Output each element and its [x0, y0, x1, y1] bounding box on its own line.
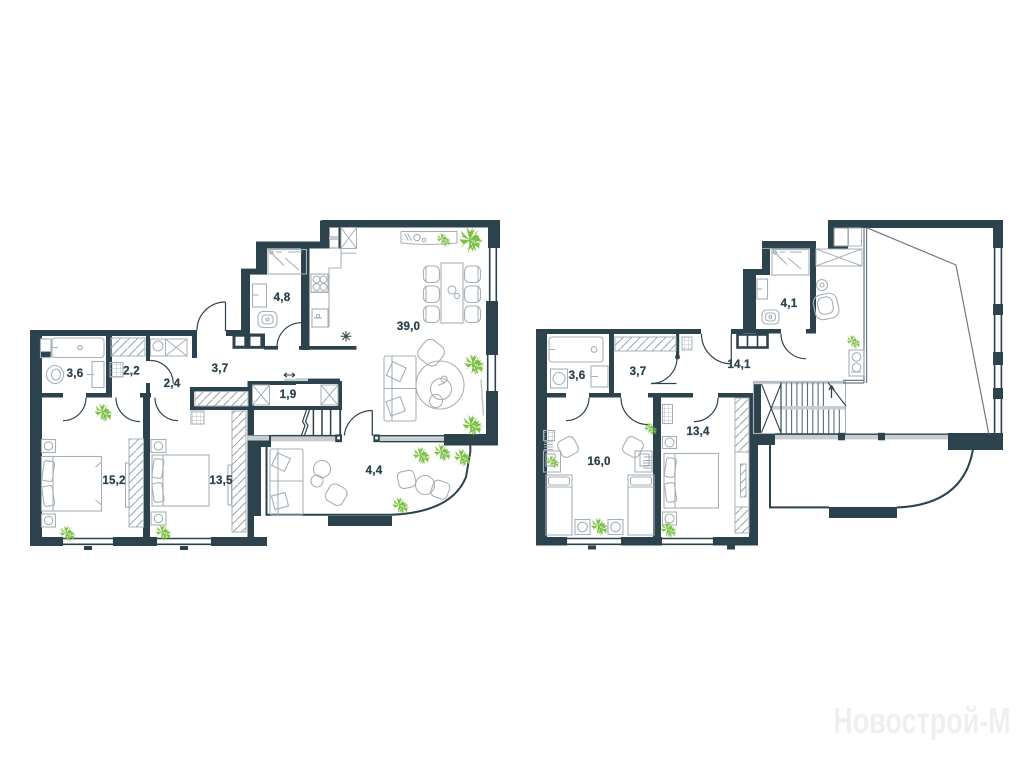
svg-text:13,5: 13,5: [209, 474, 233, 487]
svg-text:2,4: 2,4: [164, 377, 181, 390]
svg-text:13,4: 13,4: [686, 425, 710, 438]
svg-text:4,1: 4,1: [781, 297, 798, 310]
svg-text:3,7: 3,7: [630, 365, 647, 378]
svg-text:3,6: 3,6: [569, 369, 586, 382]
svg-text:15,2: 15,2: [102, 474, 125, 487]
svg-text:16,0: 16,0: [587, 455, 610, 468]
svg-text:14,1: 14,1: [727, 358, 751, 371]
svg-text:39,0: 39,0: [397, 320, 420, 333]
svg-text:3,6: 3,6: [67, 367, 84, 380]
svg-text:4,4: 4,4: [366, 464, 383, 477]
svg-text:3,7: 3,7: [212, 362, 229, 375]
svg-text:1,9: 1,9: [280, 388, 297, 401]
svg-text:Новострой-М: Новострой-М: [833, 700, 1011, 741]
svg-text:2,2: 2,2: [123, 365, 140, 378]
svg-text:4,8: 4,8: [274, 291, 291, 304]
